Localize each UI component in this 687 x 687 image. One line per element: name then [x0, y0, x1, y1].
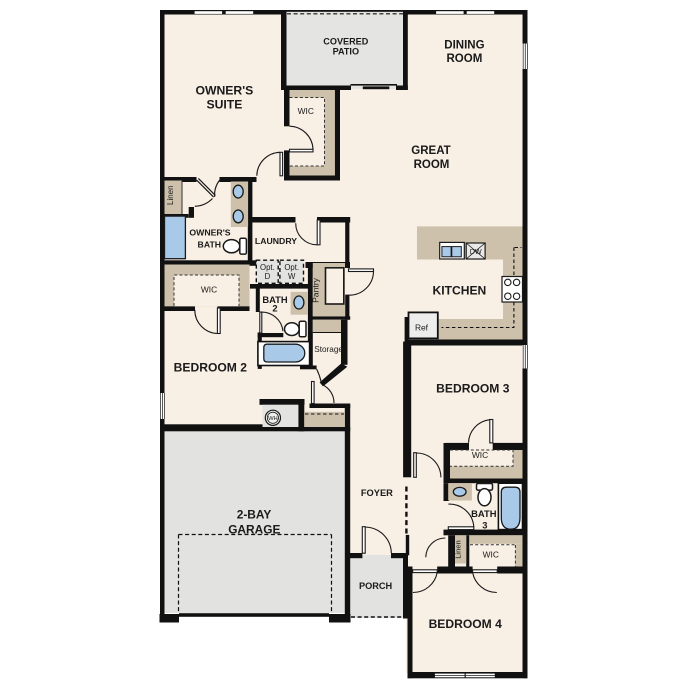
- svg-text:WH: WH: [268, 416, 278, 422]
- svg-text:COVERED: COVERED: [323, 37, 368, 47]
- svg-text:OWNER'S: OWNER'S: [196, 83, 254, 97]
- svg-text:WIC: WIC: [483, 550, 499, 560]
- svg-text:D: D: [265, 272, 271, 281]
- svg-text:BEDROOM 4: BEDROOM 4: [429, 617, 503, 631]
- svg-text:Storage: Storage: [314, 345, 343, 354]
- svg-text:Opt.: Opt.: [284, 263, 299, 272]
- svg-text:GARAGE: GARAGE: [228, 523, 280, 537]
- svg-text:DW: DW: [470, 247, 482, 256]
- svg-text:BATH: BATH: [198, 239, 221, 249]
- svg-text:2-BAY: 2-BAY: [237, 508, 272, 522]
- svg-text:WIC: WIC: [298, 106, 314, 116]
- svg-text:DINING: DINING: [444, 40, 484, 52]
- svg-text:Ref: Ref: [415, 322, 429, 332]
- svg-text:Pantry: Pantry: [311, 277, 321, 303]
- svg-text:W: W: [288, 272, 296, 281]
- svg-text:BEDROOM 2: BEDROOM 2: [174, 361, 248, 375]
- svg-text:ROOM: ROOM: [414, 159, 450, 171]
- svg-text:OWNER'S: OWNER'S: [189, 228, 230, 238]
- svg-text:BATH: BATH: [471, 508, 497, 519]
- svg-text:BEDROOM 3: BEDROOM 3: [436, 382, 510, 396]
- svg-text:LAUNDRY: LAUNDRY: [255, 236, 297, 246]
- svg-text:WIC: WIC: [472, 450, 488, 460]
- svg-text:ROOM: ROOM: [447, 53, 483, 65]
- svg-text:PORCH: PORCH: [359, 581, 393, 591]
- svg-text:GREAT: GREAT: [411, 145, 450, 157]
- svg-text:3: 3: [482, 519, 487, 530]
- svg-text:SUITE: SUITE: [206, 97, 242, 111]
- svg-text:Linen: Linen: [166, 185, 175, 205]
- svg-text:WIC: WIC: [201, 284, 217, 294]
- svg-text:Opt.: Opt.: [260, 263, 275, 272]
- svg-text:PATIO: PATIO: [333, 47, 359, 57]
- svg-text:Linen: Linen: [454, 540, 463, 559]
- svg-text:2: 2: [272, 303, 277, 314]
- svg-text:KITCHEN: KITCHEN: [433, 283, 487, 297]
- svg-text:FOYER: FOYER: [361, 488, 393, 498]
